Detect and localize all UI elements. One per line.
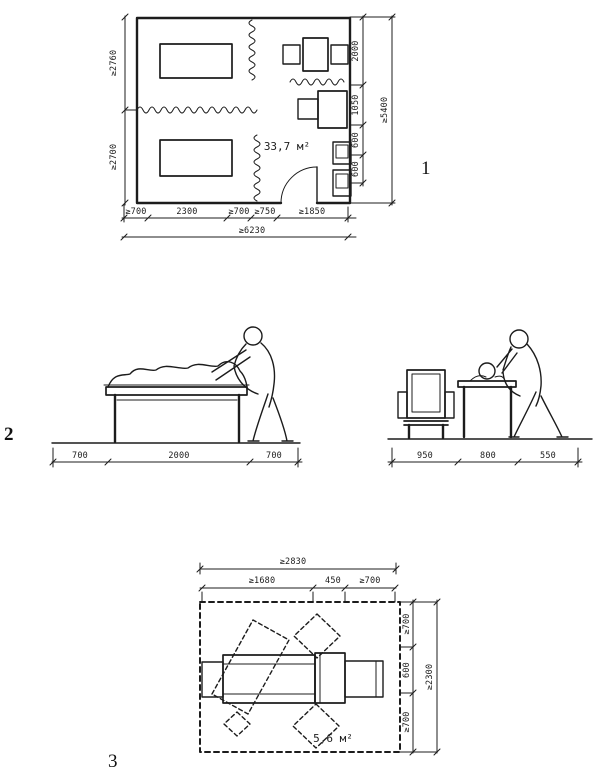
dim-top-chain: ≥1680 450 ≥700 (199, 576, 398, 602)
treatment-chair-plan (202, 653, 383, 703)
dim-label: ≥700 (228, 207, 249, 217)
dim-chain-bottom: ≥700 2300 ≥700 ≥750 ≥1850 (121, 205, 356, 222)
alternative-positions-dashed (212, 614, 340, 748)
screen-zigzag-horizontal-right (290, 79, 344, 85)
figure1-number: 1 (421, 158, 431, 179)
dim-right-total: ≥2300 (425, 599, 440, 755)
dim-label: 2000 (168, 451, 189, 461)
dim-label: 2300 (176, 207, 197, 217)
dim-label: 1050 (351, 94, 361, 115)
massage-couch-bottom (160, 140, 232, 176)
dim-label: ≥700 (402, 711, 412, 732)
dim-chain-right-total: ≥5400 (380, 14, 395, 206)
stool-position-top (294, 614, 340, 658)
dim-label: ≥2300 (425, 664, 435, 691)
screen-zigzag-horizontal-mid (137, 107, 257, 113)
dim-label: ≥700 (402, 613, 412, 634)
figure2-elevations: 700 2000 700 (4, 327, 592, 467)
dim-chain-bottom-total: ≥6230 (121, 226, 356, 240)
dim-label: ≥700 (359, 576, 380, 586)
dim-label: 700 (72, 451, 88, 461)
couch-legs (115, 395, 239, 442)
dim-label: 600 (351, 132, 361, 148)
sink-unit-top (333, 142, 351, 164)
dim-label: 600 (351, 161, 361, 177)
room-area-label: 33,7 м² (264, 140, 310, 153)
dim-label: 950 (417, 451, 433, 461)
therapist-standing (212, 327, 293, 441)
dim-label: ≥1680 (249, 576, 276, 586)
scanned-drawing-page: 33,7 м² ≥2760 ≥2700 2000 1050 600 600 ≥5… (0, 0, 604, 779)
couch-dim-chain: 700 2000 700 (50, 448, 302, 467)
dim-label: ≥2700 (109, 144, 119, 171)
patient-lying (108, 362, 247, 387)
dim-label: ≥1850 (299, 207, 326, 217)
figure1-floor-plan: 33,7 м² ≥2760 ≥2700 2000 1050 600 600 ≥5… (109, 14, 431, 240)
sink-unit-bottom (333, 170, 351, 196)
screen-zigzag-vertical-bottom (254, 135, 260, 201)
chair-front-view (398, 370, 454, 438)
screen-zigzag-vertical-top (249, 20, 255, 80)
dim-label: 2000 (351, 40, 361, 61)
massage-couch-top (160, 44, 232, 78)
dim-label: 700 (266, 451, 282, 461)
figure3-workspace-plan: ≥2830 ≥1680 450 ≥700 5,6 (108, 557, 440, 772)
dim-label: 600 (402, 662, 412, 678)
dim-label: ≥6230 (239, 226, 266, 236)
dim-chain-left: ≥2760 ≥2700 (109, 14, 137, 206)
dim-label: ≥2760 (109, 50, 119, 77)
dim-label: 450 (325, 576, 341, 586)
couch-top (106, 387, 247, 395)
dim-label: ≥2830 (280, 557, 307, 567)
dim-label: ≥750 (254, 207, 275, 217)
desk-chair-right (331, 45, 348, 64)
chair-backrest (345, 661, 383, 697)
chair-table-elevation: 950 800 550 (388, 330, 592, 467)
door-swing-arc (281, 167, 317, 203)
drawing-canvas: 33,7 м² ≥2760 ≥2700 2000 1050 600 600 ≥5… (0, 0, 604, 779)
figure2-number: 2 (4, 424, 14, 445)
dim-label: 800 (480, 451, 496, 461)
figure3-number: 3 (108, 751, 118, 772)
couch-elevation: 700 2000 700 (50, 327, 302, 467)
dim-label: ≥700 (125, 207, 146, 217)
chair-dim-chain: 950 800 550 (388, 448, 582, 467)
work-table (318, 91, 347, 128)
dim-label: ≥5400 (380, 97, 390, 124)
patient-at-table (470, 363, 505, 381)
treatment-table (458, 381, 516, 437)
desk-chair-left (283, 45, 300, 64)
dim-label: 550 (540, 451, 556, 461)
workspace-area-label: 5,6 м² (313, 732, 353, 745)
work-chair (298, 99, 318, 119)
desk-table (303, 38, 328, 71)
stool-position-left (224, 712, 250, 736)
dim-top-total: ≥2830 (197, 557, 399, 574)
therapist-leaning (497, 330, 568, 437)
